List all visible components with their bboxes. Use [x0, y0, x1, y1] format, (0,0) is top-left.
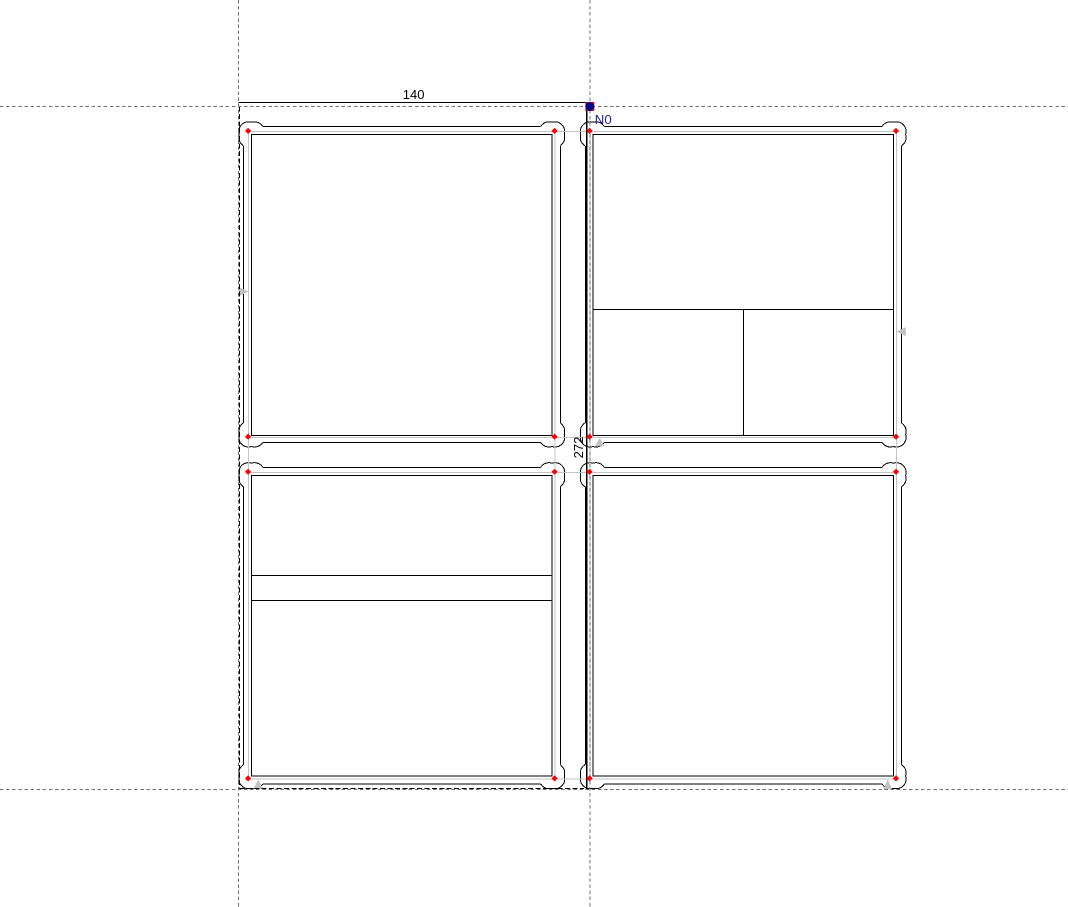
- svg-text:140: 140: [403, 87, 425, 102]
- svg-text:272: 272: [571, 437, 586, 459]
- svg-text:N0: N0: [595, 112, 612, 127]
